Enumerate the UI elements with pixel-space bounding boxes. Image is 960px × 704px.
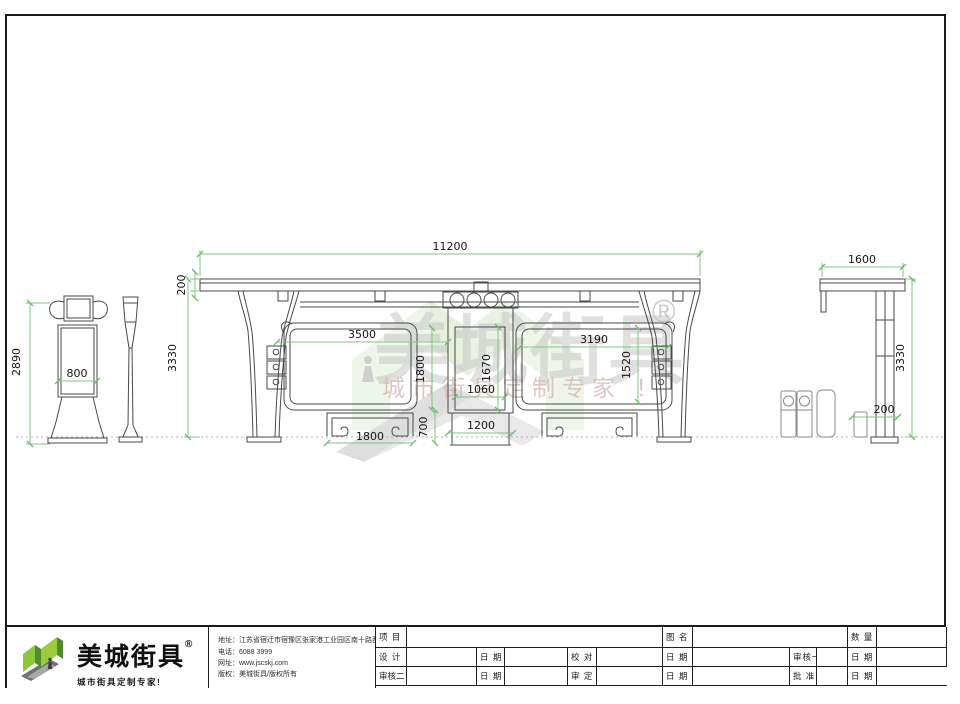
titleblock-label-design: 设 计 (376, 648, 407, 667)
titleblock-value-approval (597, 667, 663, 686)
company-phone: 电话：6088 3999 (218, 647, 375, 658)
cad-sheet: 美城街具 ® 城市街具定制专家 ！ (0, 0, 960, 704)
titleblock-value-date (877, 667, 947, 686)
company-copyright: 版权：美城街具/版权所有 (218, 669, 375, 680)
titleblock-value-date (505, 667, 568, 686)
titleblock-value-review2 (407, 667, 477, 686)
company-website: 网址：www.jscskj.com (218, 658, 375, 669)
titleblock-value-date (505, 648, 568, 667)
titleblock-label-review1: 审核一 (790, 648, 817, 667)
titleblock-value-quantity (877, 627, 947, 648)
titleblock-label-date: 日 期 (663, 667, 693, 686)
company-info-block: 地址：江苏省宿迁市宿豫区张家港工业园区南十路西侧1号 电话：6088 3999 … (209, 627, 375, 688)
titleblock-value-project (407, 627, 663, 648)
titleblock-table: 项 目 图 名 数 量 设 计 日 期 校 对 日 期 审核一 日 期 审核二 … (375, 627, 946, 688)
titleblock-value-date (693, 667, 790, 686)
titleblock-label-ratify: 批 准 (790, 667, 817, 686)
titleblock-value-date (877, 648, 947, 667)
titleblock-label-date: 日 期 (848, 648, 877, 667)
titleblock-label-date: 日 期 (477, 648, 505, 667)
titleblock-value-ratify (817, 667, 848, 686)
footer-band: 美城街具® 城市街具定制专家! 地址：江苏省宿迁市宿豫区张家港工业园区南十路西侧… (7, 625, 946, 688)
titleblock-label-project: 项 目 (376, 627, 407, 648)
titleblock-label-review2: 审核二 (376, 667, 407, 686)
titleblock-label-quantity: 数 量 (848, 627, 877, 648)
company-logo-block: 美城街具® 城市街具定制专家! (7, 627, 208, 688)
sheet-border (5, 14, 946, 688)
titleblock-value-date (693, 648, 790, 667)
titleblock-value-design (407, 648, 477, 667)
titleblock-value-drawing-name (693, 627, 848, 648)
company-address: 地址：江苏省宿迁市宿豫区张家港工业园区南十路西侧1号 (218, 634, 375, 647)
registered-mark: ® (185, 639, 192, 650)
titleblock-label-proofread: 校 对 (568, 648, 597, 667)
company-brand: 美城街具® (77, 631, 207, 671)
titleblock-label-date: 日 期 (663, 648, 693, 667)
titleblock-label-drawing-name: 图 名 (663, 627, 693, 648)
titleblock-value-review1 (817, 648, 848, 667)
titleblock-value-proofread (597, 648, 663, 667)
titleblock-label-date: 日 期 (477, 667, 505, 686)
company-logo-icon (19, 632, 77, 686)
company-slogan: 城市街具定制专家! (77, 676, 207, 688)
titleblock-label-date: 日 期 (848, 667, 877, 686)
titleblock-label-approval: 审 定 (568, 667, 597, 686)
